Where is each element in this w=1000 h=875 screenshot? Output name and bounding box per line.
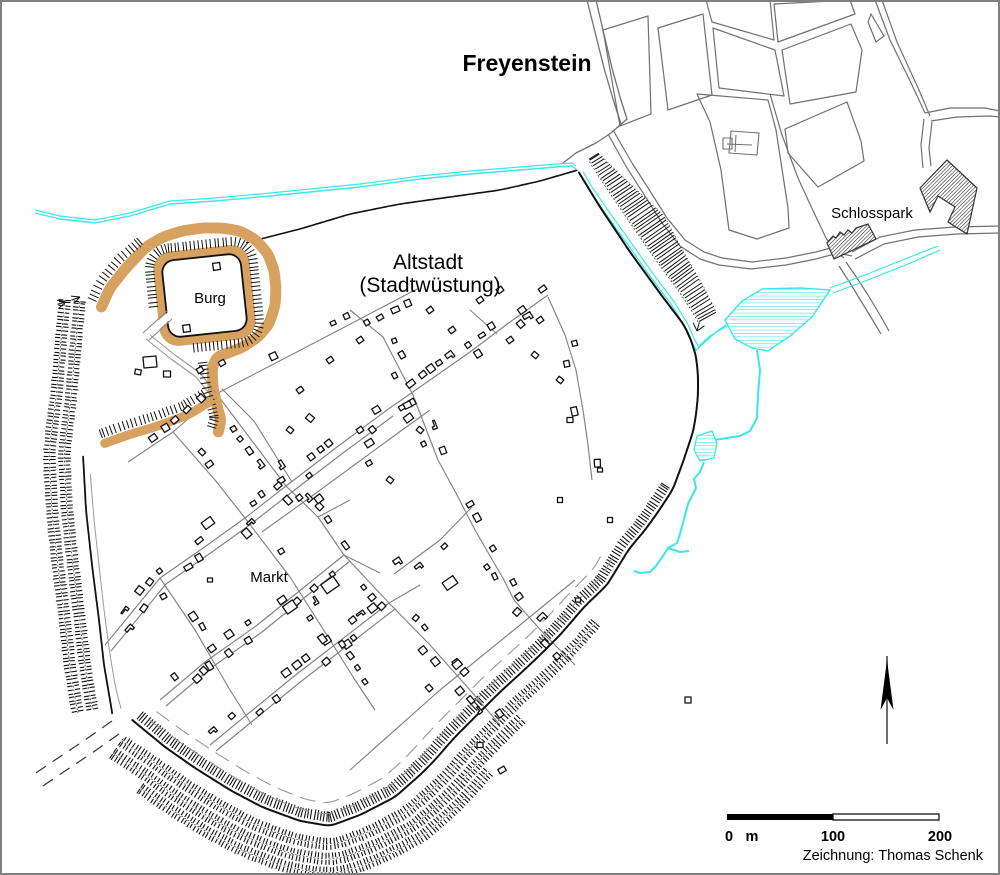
svg-text:100: 100 <box>821 829 845 845</box>
svg-text:Altstadt: Altstadt <box>393 251 463 274</box>
svg-text:Freyenstein: Freyenstein <box>462 50 591 76</box>
svg-text:(Stadtwüstung): (Stadtwüstung) <box>359 274 500 297</box>
svg-text:Schlosspark: Schlosspark <box>831 205 913 222</box>
svg-text:0: 0 <box>725 829 733 845</box>
svg-text:Burg: Burg <box>194 290 226 307</box>
svg-text:Zeichnung: Thomas Schenk: Zeichnung: Thomas Schenk <box>803 848 984 864</box>
svg-text:Markt: Markt <box>250 569 288 586</box>
svg-text:200: 200 <box>928 829 952 845</box>
svg-text:m: m <box>746 829 759 845</box>
